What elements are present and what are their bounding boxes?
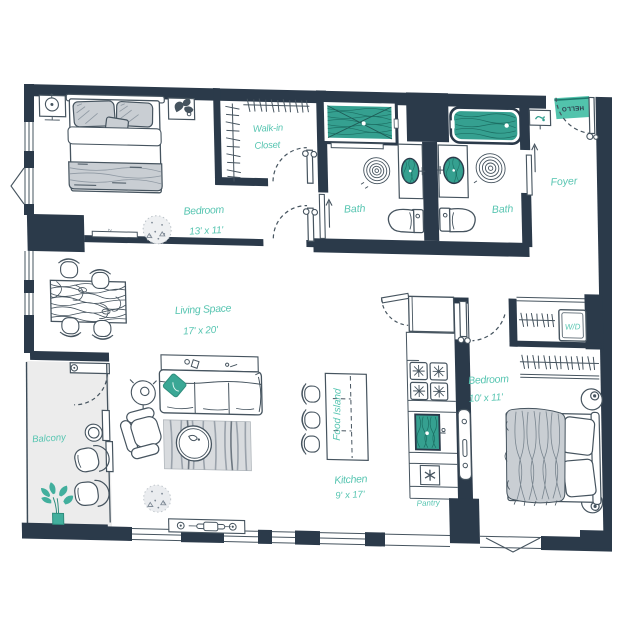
svg-text:Foyer: Foyer [550,175,578,188]
svg-text:13' x 11': 13' x 11' [189,225,225,238]
svg-text:Bedroom: Bedroom [468,373,510,387]
svg-text:Food Island: Food Island [332,388,344,441]
svg-text:Bath: Bath [491,203,514,216]
svg-text:10' x 11': 10' x 11' [468,392,504,405]
svg-text:Balcony: Balcony [32,432,68,445]
svg-text:HELLO: HELLO [561,104,584,112]
svg-text:Bath: Bath [343,203,366,216]
svg-text:17' x 20': 17' x 20' [183,325,220,338]
svg-text:9' x 17': 9' x 17' [335,489,367,501]
svg-text:W/D: W/D [565,322,581,331]
svg-text:Kitchen: Kitchen [334,473,368,487]
svg-text:Bedroom: Bedroom [183,204,225,218]
svg-text:Pantry: Pantry [416,498,441,508]
svg-text:Walk-in: Walk-in [252,123,283,135]
svg-text:Closet: Closet [254,140,281,152]
